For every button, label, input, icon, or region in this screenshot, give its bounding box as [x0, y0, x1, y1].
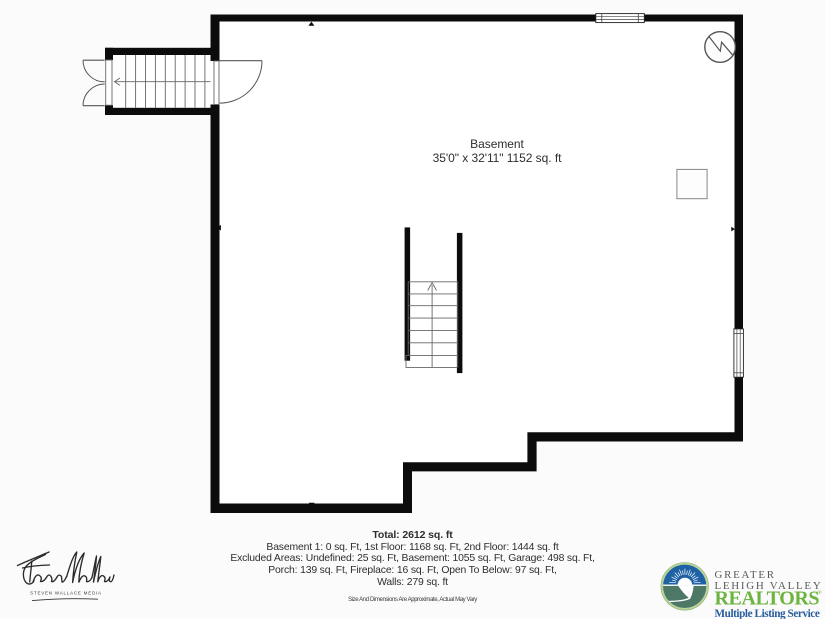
- svg-text:®: ®: [818, 589, 822, 596]
- svg-text:STEVEN WALLACE MEDIA: STEVEN WALLACE MEDIA: [30, 591, 102, 596]
- svg-text:GREATER: GREATER: [715, 569, 776, 581]
- svg-text:REALTORS: REALTORS: [715, 587, 820, 609]
- svg-text:Multiple Listing Service: Multiple Listing Service: [715, 608, 820, 619]
